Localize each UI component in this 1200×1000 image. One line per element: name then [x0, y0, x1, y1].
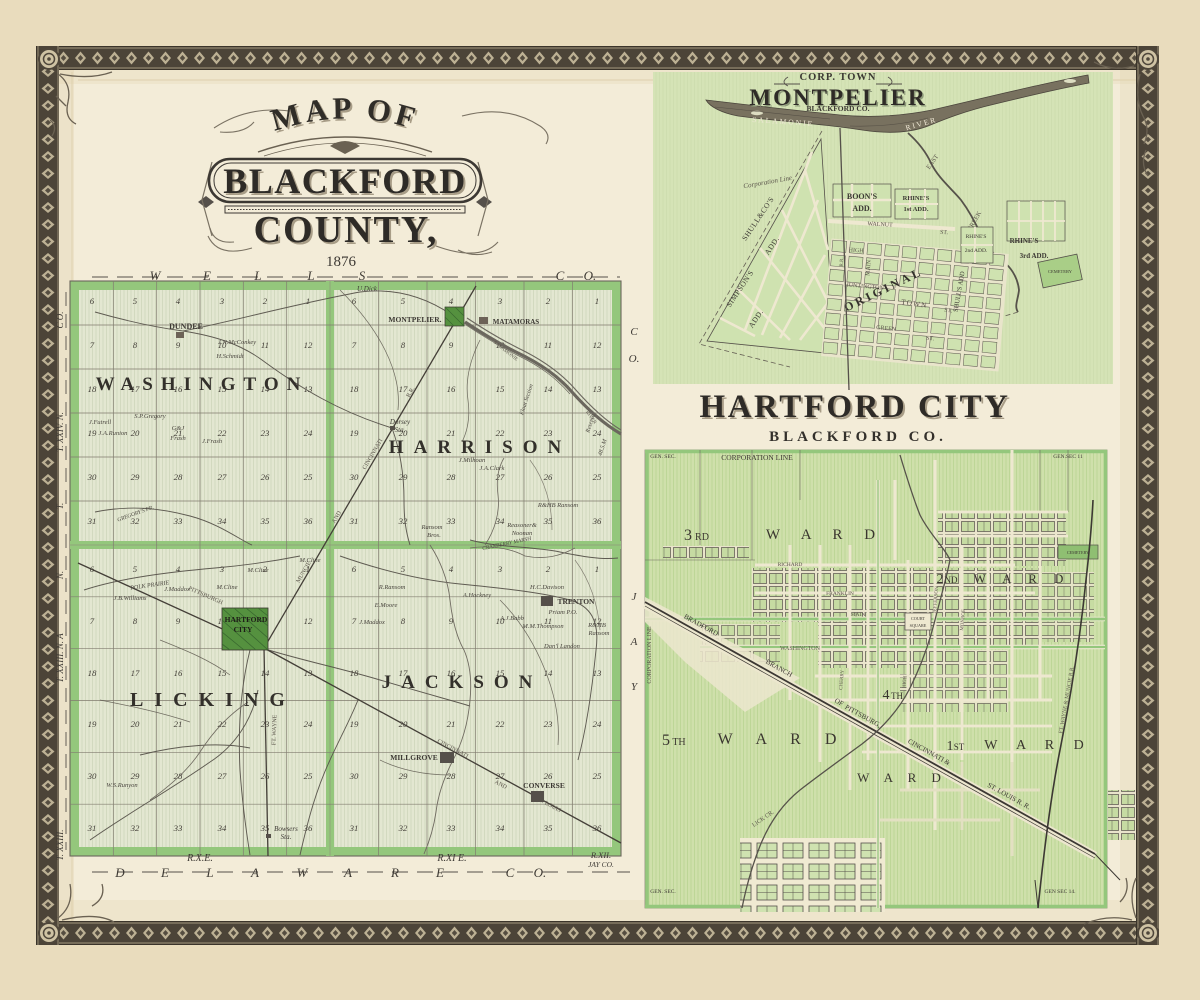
svg-text:GEN.SEC 11: GEN.SEC 11	[1053, 454, 1083, 460]
svg-text:FRANKLIN: FRANKLIN	[826, 591, 854, 597]
svg-text:Ransom: Ransom	[588, 630, 610, 637]
svg-text:2: 2	[937, 572, 944, 587]
svg-text:DUNDEE: DUNDEE	[169, 322, 203, 331]
svg-text:S.P.Gregory: S.P.Gregory	[134, 413, 166, 420]
svg-text:R: R	[390, 865, 399, 880]
svg-text:21: 21	[174, 719, 183, 729]
svg-text:30: 30	[349, 472, 359, 482]
svg-text:11: 11	[544, 340, 552, 350]
svg-text:3: 3	[497, 564, 503, 574]
svg-text:BLACKFORD: BLACKFORD	[223, 161, 467, 201]
svg-text:HARTFORD CITY: HARTFORD CITY	[700, 389, 1011, 425]
svg-text:35: 35	[260, 516, 270, 526]
svg-text:O.: O.	[629, 353, 640, 365]
svg-text:WASHINGTON: WASHINGTON	[780, 646, 821, 652]
svg-text:14: 14	[261, 668, 270, 678]
svg-text:12: 12	[304, 340, 313, 350]
svg-text:M.Cline: M.Cline	[298, 557, 320, 564]
svg-text:25: 25	[304, 771, 313, 781]
svg-text:W: W	[150, 268, 162, 283]
svg-text:HARRISON: HARRISON	[389, 437, 571, 458]
svg-text:Frash: Frash	[169, 435, 186, 442]
svg-text:G&J: G&J	[172, 425, 186, 432]
svg-text:36: 36	[592, 516, 602, 526]
svg-text:9: 9	[176, 340, 181, 350]
svg-text:MILLGROVE: MILLGROVE	[390, 753, 438, 762]
svg-text:RICHARD: RICHARD	[778, 562, 803, 568]
svg-text:23: 23	[261, 428, 270, 438]
svg-text:1876: 1876	[326, 254, 357, 270]
svg-text:32: 32	[130, 823, 140, 833]
svg-text:8: 8	[401, 616, 406, 626]
svg-text:T. XXIV. N.: T. XXIV. N.	[55, 412, 65, 452]
svg-text:M.Cline: M.Cline	[215, 584, 237, 591]
svg-text:6: 6	[352, 296, 357, 306]
svg-text:6: 6	[352, 564, 357, 574]
svg-text:3: 3	[219, 564, 225, 574]
svg-text:5: 5	[662, 732, 670, 749]
svg-text:W A R D: W A R D	[974, 571, 1071, 586]
svg-text:W A R D: W A R D	[857, 770, 947, 785]
svg-text:A: A	[630, 636, 638, 648]
svg-text:34: 34	[217, 516, 227, 526]
svg-text:18: 18	[88, 668, 97, 678]
svg-text:N.: N.	[55, 571, 65, 580]
svg-text:7: 7	[352, 616, 357, 626]
svg-text:3rd ADD.: 3rd ADD.	[1020, 252, 1049, 260]
svg-text:W A R D: W A R D	[984, 738, 1091, 753]
svg-text:ST: ST	[954, 742, 965, 752]
svg-text:26: 26	[261, 472, 270, 482]
svg-text:CITY: CITY	[234, 625, 253, 634]
svg-text:A.Hackney: A.Hackney	[462, 592, 491, 599]
svg-text:GEN SEC 14.: GEN SEC 14.	[1044, 889, 1076, 895]
svg-text:A: A	[343, 865, 352, 880]
svg-text:C: C	[556, 268, 565, 283]
svg-text:31: 31	[87, 823, 97, 833]
svg-text:J.Frash: J.Frash	[202, 438, 222, 445]
svg-text:18: 18	[350, 384, 359, 394]
svg-text:RHINE'S: RHINE'S	[903, 195, 930, 202]
svg-text:33: 33	[173, 823, 183, 833]
svg-text:1: 1	[947, 739, 954, 754]
svg-text:11: 11	[261, 340, 269, 350]
svg-text:33: 33	[446, 516, 456, 526]
svg-text:22: 22	[218, 428, 227, 438]
svg-text:19: 19	[88, 719, 97, 729]
svg-text:5: 5	[401, 296, 406, 306]
svg-text:J.Milhoan: J.Milhoan	[459, 457, 486, 464]
svg-text:Bowsers: Bowsers	[274, 825, 298, 833]
svg-text:31: 31	[87, 516, 97, 526]
svg-text:2nd ADD.: 2nd ADD.	[965, 248, 988, 254]
svg-text:CEMETERY: CEMETERY	[1048, 269, 1073, 274]
svg-text:1: 1	[595, 564, 599, 574]
svg-text:Sta.: Sta.	[395, 426, 406, 434]
svg-text:32: 32	[398, 516, 408, 526]
svg-text:W: W	[297, 865, 309, 880]
svg-text:D: D	[114, 865, 125, 880]
svg-text:24: 24	[593, 428, 602, 438]
svg-text:R.R.: R.R.	[840, 257, 845, 266]
svg-text:J.Maddox: J.Maddox	[164, 586, 190, 593]
svg-text:2: 2	[546, 564, 551, 574]
svg-text:W A R D: W A R D	[718, 731, 847, 748]
svg-text:C O.: C O.	[55, 311, 65, 328]
svg-text:26: 26	[261, 771, 270, 781]
svg-text:BLACKFORD CO.: BLACKFORD CO.	[769, 429, 947, 445]
svg-text:J.B.Williams: J.B.Williams	[114, 595, 147, 602]
svg-text:COUNTY,: COUNTY,	[254, 209, 439, 251]
svg-text:A.J.Babb: A.J.Babb	[499, 615, 525, 622]
svg-text:14: 14	[544, 384, 553, 394]
svg-text:12: 12	[304, 616, 313, 626]
svg-text:R.XI E.: R.XI E.	[436, 853, 466, 864]
svg-text:MAIN: MAIN	[851, 612, 866, 618]
svg-text:6: 6	[90, 296, 95, 306]
svg-text:BOON'S: BOON'S	[847, 192, 878, 201]
svg-text:34: 34	[495, 823, 505, 833]
svg-text:8: 8	[401, 340, 406, 350]
svg-text:25: 25	[593, 472, 602, 482]
svg-text:L: L	[205, 865, 213, 880]
svg-text:JAY CO.: JAY CO.	[588, 860, 614, 869]
svg-text:3: 3	[684, 527, 692, 544]
svg-text:9: 9	[176, 616, 181, 626]
svg-text:5: 5	[401, 564, 406, 574]
svg-text:5: 5	[133, 564, 138, 574]
svg-text:9: 9	[449, 340, 454, 350]
svg-text:CEMETERY: CEMETERY	[1067, 550, 1089, 555]
svg-text:21: 21	[447, 719, 456, 729]
svg-text:Reasoner&: Reasoner&	[506, 522, 538, 529]
svg-text:4: 4	[449, 564, 454, 574]
svg-text:16: 16	[447, 384, 456, 394]
svg-text:O.: O.	[584, 268, 597, 283]
svg-text:13: 13	[304, 668, 313, 678]
svg-text:ST.: ST.	[940, 230, 949, 236]
svg-text:RHINE'S: RHINE'S	[966, 234, 987, 240]
svg-text:3: 3	[219, 296, 225, 306]
svg-text:E: E	[160, 865, 169, 880]
svg-text:MATAMORAS: MATAMORAS	[493, 318, 540, 326]
svg-text:28: 28	[174, 472, 183, 482]
svg-text:30: 30	[349, 771, 359, 781]
svg-text:BLACKFORD CO.: BLACKFORD CO.	[807, 104, 870, 113]
svg-text:H.C.Davison: H.C.Davison	[529, 584, 564, 591]
svg-text:T. XXIII. N. A: T. XXIII. N. A	[55, 633, 65, 683]
svg-text:29: 29	[399, 771, 408, 781]
svg-text:ADD.: ADD.	[852, 204, 871, 213]
svg-text:Priam P.O.: Priam P.O.	[548, 609, 578, 616]
svg-text:8: 8	[133, 616, 138, 626]
svg-text:20: 20	[131, 719, 140, 729]
svg-text:LICKING: LICKING	[130, 689, 296, 711]
svg-text:HARTFORD: HARTFORD	[225, 615, 268, 624]
svg-text:28: 28	[174, 771, 183, 781]
svg-text:29: 29	[131, 771, 140, 781]
svg-text:16: 16	[174, 668, 183, 678]
svg-text:20: 20	[131, 428, 140, 438]
svg-text:J.A.Runion: J.A.Runion	[99, 430, 128, 437]
svg-text:L: L	[306, 268, 314, 283]
svg-text:RD: RD	[695, 532, 709, 543]
svg-text:TH: TH	[672, 737, 685, 748]
svg-text:26: 26	[544, 771, 553, 781]
svg-text:TRENTON: TRENTON	[558, 597, 596, 606]
svg-text:R&HB: R&HB	[587, 622, 606, 629]
svg-text:WASHINGTON: WASHINGTON	[96, 374, 309, 395]
svg-text:28: 28	[447, 472, 456, 482]
svg-text:CONVERSE: CONVERSE	[523, 781, 565, 790]
svg-text:4: 4	[176, 296, 181, 306]
svg-text:R.Ransom: R.Ransom	[378, 584, 406, 591]
svg-text:17: 17	[131, 668, 140, 678]
svg-text:29: 29	[131, 472, 140, 482]
svg-text:27: 27	[218, 472, 227, 482]
svg-text:7: 7	[90, 616, 95, 626]
svg-text:SQUARE: SQUARE	[910, 623, 927, 628]
svg-text:3: 3	[497, 296, 503, 306]
svg-text:CORP. TOWN: CORP. TOWN	[800, 72, 877, 83]
svg-text:R&HB Ransom: R&HB Ransom	[537, 502, 579, 509]
svg-text:M.M.Thompson: M.M.Thompson	[521, 623, 563, 630]
svg-text:CORPORATION LINE: CORPORATION LINE	[721, 453, 793, 462]
svg-text:Ransom: Ransom	[421, 524, 443, 531]
svg-text:S: S	[359, 268, 366, 283]
svg-text:CORPORATION LINE: CORPORATION LINE	[647, 626, 653, 684]
svg-text:Dorsey: Dorsey	[389, 418, 411, 426]
svg-text:J.Futrell: J.Futrell	[89, 419, 112, 426]
svg-text:TH: TH	[891, 691, 903, 701]
svg-text:ND: ND	[945, 575, 958, 585]
svg-text:22: 22	[496, 719, 505, 729]
svg-text:30: 30	[87, 771, 97, 781]
svg-text:A: A	[250, 865, 259, 880]
svg-text:2: 2	[546, 296, 551, 306]
svg-text:R.XII.: R.XII.	[590, 850, 611, 860]
svg-text:O.: O.	[534, 865, 547, 880]
svg-text:J.Maddox: J.Maddox	[359, 619, 385, 626]
svg-text:33: 33	[446, 823, 456, 833]
svg-text:L: L	[253, 268, 261, 283]
svg-text:U.Dick: U.Dick	[357, 285, 378, 293]
svg-text:13: 13	[593, 384, 602, 394]
svg-text:T.: T.	[55, 503, 65, 510]
svg-text:1: 1	[306, 296, 310, 306]
svg-text:E: E	[435, 865, 444, 880]
svg-text:T. XXIII.: T. XXIII.	[55, 829, 65, 860]
svg-text:27: 27	[218, 771, 227, 781]
svg-text:M.Cline: M.Cline	[246, 567, 268, 574]
svg-text:FT. WAYNE: FT. WAYNE	[271, 714, 278, 745]
svg-text:MONTPELIER.: MONTPELIER.	[388, 315, 441, 324]
svg-text:C: C	[630, 326, 638, 338]
svg-text:GEN. SEC.: GEN. SEC.	[650, 889, 676, 895]
svg-text:26: 26	[544, 472, 553, 482]
svg-text:25: 25	[304, 472, 313, 482]
svg-text:W A R D: W A R D	[766, 527, 884, 543]
svg-text:7: 7	[90, 340, 95, 350]
svg-text:Dan'l Landon: Dan'l Landon	[543, 643, 580, 650]
svg-text:RHINE'S: RHINE'S	[1010, 237, 1039, 245]
svg-text:Bros.: Bros.	[427, 532, 441, 539]
svg-text:33: 33	[173, 516, 183, 526]
svg-text:2: 2	[263, 296, 268, 306]
svg-text:30: 30	[87, 472, 97, 482]
svg-text:7: 7	[352, 340, 357, 350]
svg-text:19: 19	[350, 428, 359, 438]
svg-text:31: 31	[349, 516, 359, 526]
svg-text:36: 36	[303, 516, 313, 526]
svg-text:24: 24	[304, 719, 313, 729]
svg-text:23: 23	[544, 719, 553, 729]
svg-text:4: 4	[176, 564, 181, 574]
svg-text:34: 34	[217, 823, 227, 833]
svg-text:5: 5	[133, 296, 138, 306]
svg-text:C: C	[506, 865, 515, 880]
svg-text:31: 31	[349, 823, 359, 833]
svg-text:28: 28	[447, 771, 456, 781]
svg-text:Sta.: Sta.	[281, 833, 292, 841]
svg-text:25: 25	[593, 771, 602, 781]
svg-text:HIGH: HIGH	[848, 247, 864, 254]
svg-text:24: 24	[593, 719, 602, 729]
svg-text:W.S.Runyon: W.S.Runyon	[106, 782, 137, 789]
svg-text:15: 15	[496, 384, 505, 394]
svg-text:ST.: ST.	[926, 336, 935, 343]
svg-text:4: 4	[883, 688, 890, 703]
svg-text:GEN. SEC.: GEN. SEC.	[650, 454, 676, 460]
svg-text:4: 4	[449, 296, 454, 306]
svg-text:COURT: COURT	[911, 616, 925, 621]
svg-text:E: E	[202, 268, 211, 283]
svg-text:32: 32	[398, 823, 408, 833]
svg-text:35: 35	[260, 823, 270, 833]
svg-text:H.Schmidt: H.Schmidt	[215, 353, 243, 360]
svg-text:JACKSON: JACKSON	[382, 672, 543, 693]
svg-text:8: 8	[133, 340, 138, 350]
svg-text:19: 19	[88, 428, 97, 438]
svg-text:J.A.Clark: J.A.Clark	[480, 465, 505, 472]
svg-text:1: 1	[595, 296, 599, 306]
svg-text:E.Moore: E.Moore	[374, 602, 398, 609]
svg-text:12: 12	[593, 340, 602, 350]
svg-text:J.N.McConkey: J.N.McConkey	[218, 339, 256, 346]
svg-text:35: 35	[543, 823, 553, 833]
svg-text:24: 24	[304, 428, 313, 438]
svg-text:R.X.E.: R.X.E.	[186, 853, 213, 864]
svg-text:1st ADD.: 1st ADD.	[904, 206, 929, 213]
svg-text:19: 19	[350, 719, 359, 729]
